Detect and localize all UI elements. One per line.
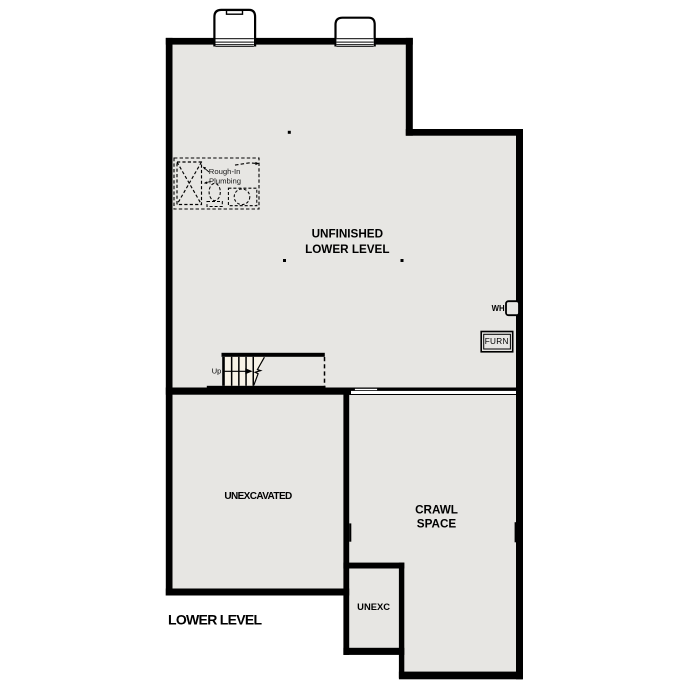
svg-text:WH: WH bbox=[492, 304, 505, 313]
svg-text:UNEXC: UNEXC bbox=[357, 601, 390, 612]
svg-text:FURN: FURN bbox=[485, 337, 509, 346]
svg-text:Plumbing: Plumbing bbox=[209, 176, 241, 185]
svg-text:UNFINISHED: UNFINISHED bbox=[312, 228, 383, 241]
svg-text:LOWER LEVEL: LOWER LEVEL bbox=[305, 243, 389, 256]
svg-text:UNEXCAVATED: UNEXCAVATED bbox=[224, 491, 292, 502]
svg-text:SPACE: SPACE bbox=[417, 517, 457, 530]
svg-text:LOWER LEVEL: LOWER LEVEL bbox=[168, 612, 263, 628]
svg-text:CRAWL: CRAWL bbox=[415, 503, 458, 516]
svg-text:Rough-In: Rough-In bbox=[209, 167, 241, 176]
svg-text:Up: Up bbox=[212, 367, 221, 376]
